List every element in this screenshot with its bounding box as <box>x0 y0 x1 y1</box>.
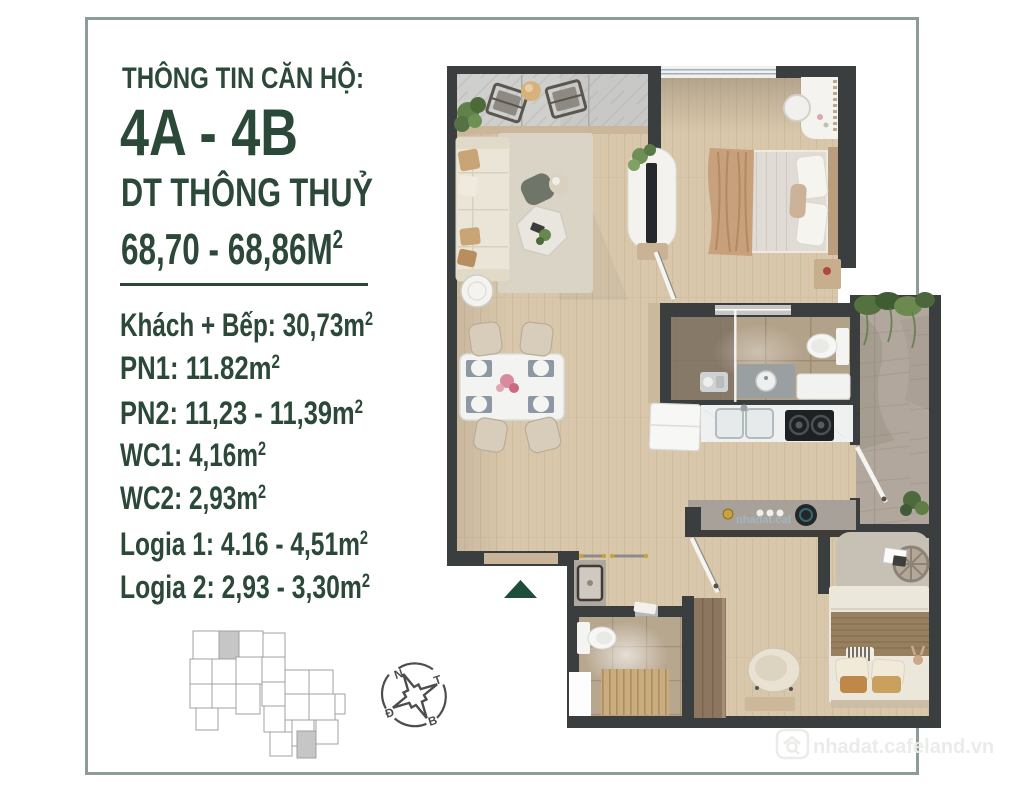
svg-text:DT THÔNG THUỶ: DT THÔNG THUỶ <box>121 169 373 215</box>
svg-text:Logia 2: 2,93 - 3,30m2: Logia 2: 2,93 - 3,30m2 <box>120 569 370 605</box>
svg-text:WC1: 4,16m2: WC1: 4,16m2 <box>120 437 266 473</box>
svg-text:nhadat.cafeland.vn: nhadat.cafeland.vn <box>813 736 994 758</box>
svg-text:PN1: 11.82m2: PN1: 11.82m2 <box>120 350 280 386</box>
svg-text:Logia 1: 4.16 - 4,51m2: Logia 1: 4.16 - 4,51m2 <box>120 526 368 562</box>
svg-text:WC2: 2,93m2: WC2: 2,93m2 <box>120 480 266 516</box>
svg-text:PN2: 11,23 - 11,39m2: PN2: 11,23 - 11,39m2 <box>120 395 363 431</box>
svg-text:4A - 4B: 4A - 4B <box>120 95 298 169</box>
svg-text:THÔNG TIN CĂN HỘ:: THÔNG TIN CĂN HỘ: <box>122 61 364 95</box>
svg-text:68,70 - 68,86M2: 68,70 - 68,86M2 <box>121 224 343 274</box>
svg-text:Khách + Bếp: 30,73m2: Khách + Bếp: 30,73m2 <box>120 307 373 343</box>
svg-text:nhadat.caf: nhadat.caf <box>736 514 791 526</box>
